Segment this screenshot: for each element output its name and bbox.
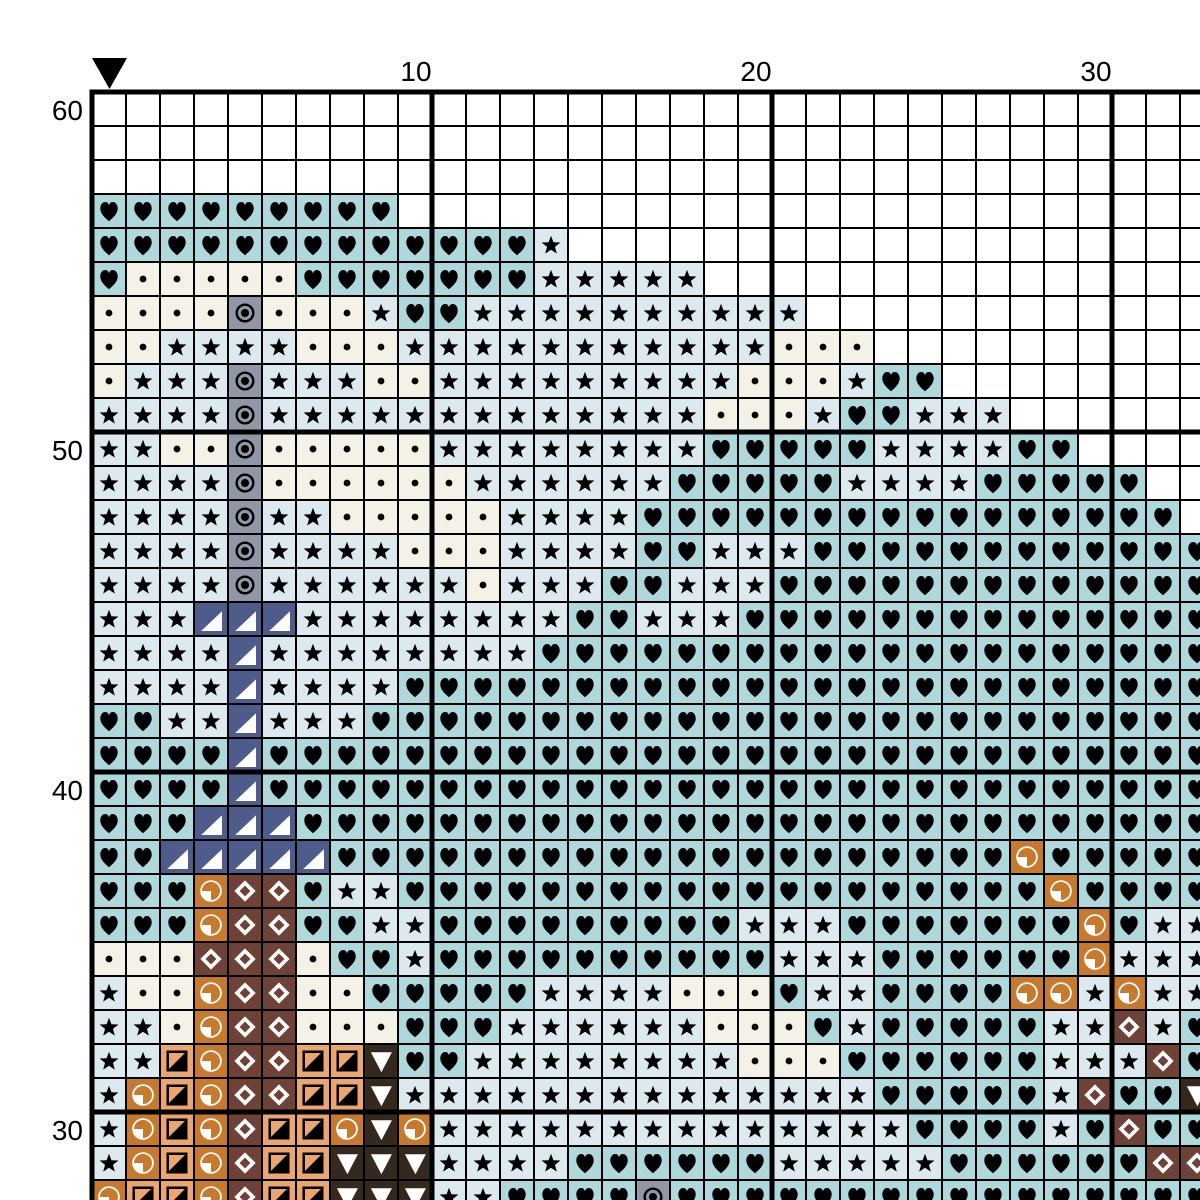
svg-text:50: 50 xyxy=(52,435,83,466)
svg-text:60: 60 xyxy=(52,95,83,126)
svg-text:20: 20 xyxy=(740,56,771,87)
svg-text:30: 30 xyxy=(52,1115,83,1146)
svg-text:40: 40 xyxy=(52,775,83,806)
svg-text:30: 30 xyxy=(1080,56,1111,87)
svg-text:10: 10 xyxy=(400,56,431,87)
